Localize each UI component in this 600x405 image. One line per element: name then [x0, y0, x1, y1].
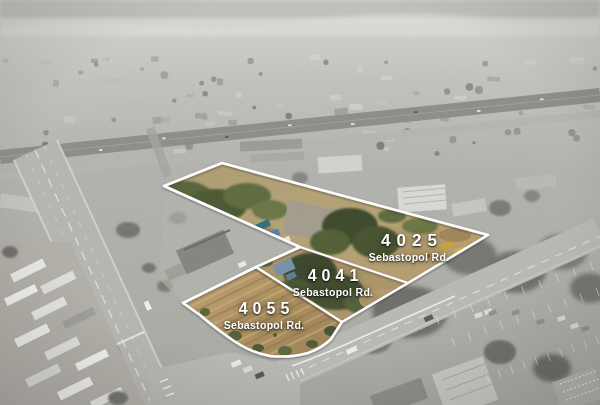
parcel-number: 4041	[298, 268, 374, 284]
parcel-street: Sebastopol Rd.	[293, 286, 374, 298]
parcel-label-4055: 4055 Sebastopol Rd.	[224, 301, 305, 331]
parcel-label-4041: 4041 Sebastopol Rd.	[293, 268, 374, 298]
parcel-number: 4025	[375, 232, 450, 249]
parcel-number: 4055	[229, 301, 305, 317]
aerial-photo: 4025 Sebastopol Rd. 4041 Sebastopol Rd. …	[0, 0, 600, 405]
parcel-street: Sebastopol Rd.	[224, 319, 305, 331]
aerial-scene	[0, 0, 600, 405]
parcel-street: Sebastopol Rd.	[369, 251, 450, 263]
parcel-label-4025: 4025 Sebastopol Rd.	[369, 232, 450, 263]
vignette	[0, 0, 600, 405]
